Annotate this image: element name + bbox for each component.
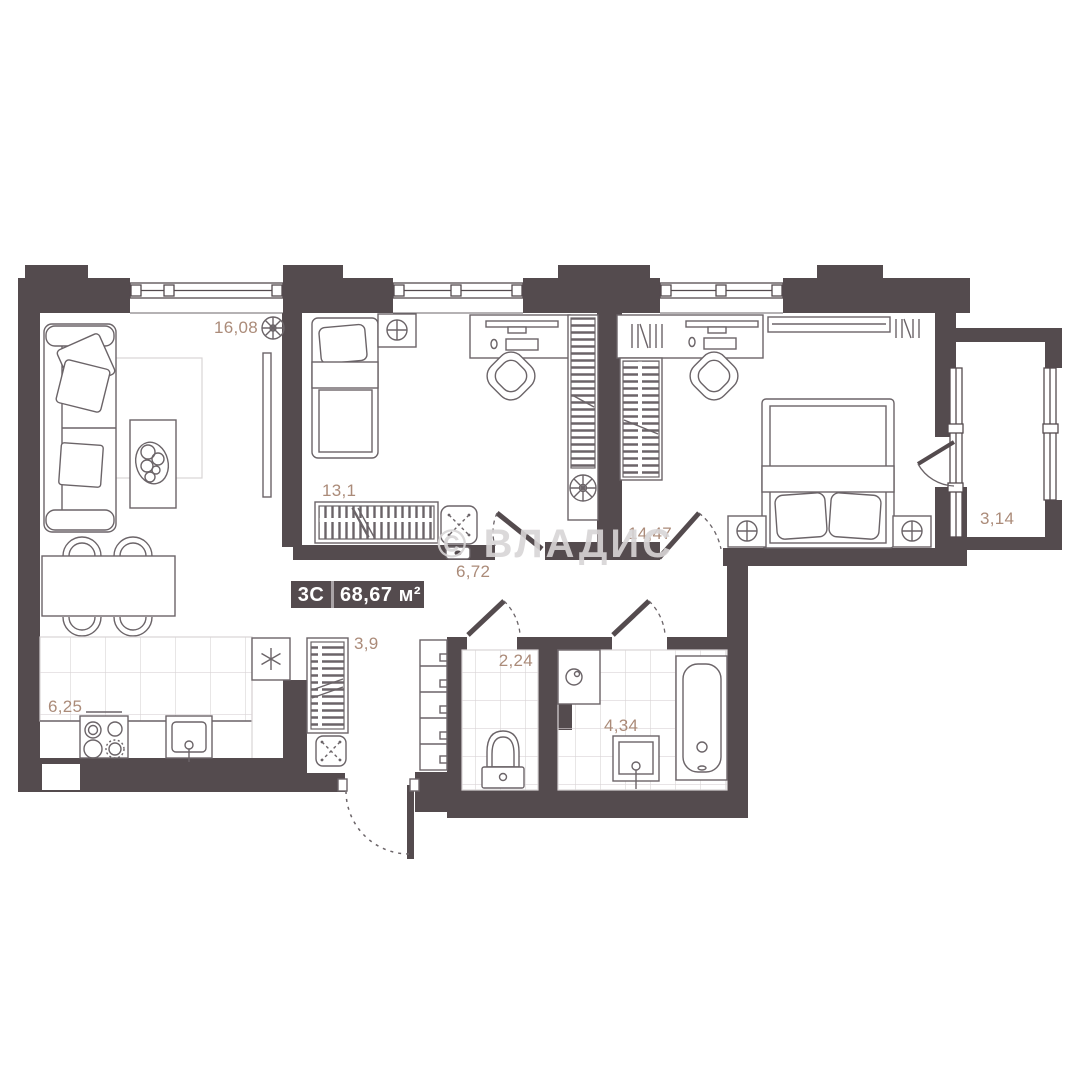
bookshelf (315, 502, 438, 543)
wall-notch (42, 764, 80, 790)
room-label-kitchen: 6,25 (48, 697, 82, 716)
shoe-bench (316, 736, 346, 766)
nightstand-right (893, 516, 931, 547)
room-label-bathroom: 4,34 (604, 716, 638, 735)
vestibule-cabinet (420, 640, 447, 770)
room-label-living: 16,08 (214, 318, 258, 337)
room-label-hallway: 3,9 (354, 634, 379, 653)
room-label-bedroom: 13,1 (322, 481, 356, 500)
hall-wardrobe (307, 638, 348, 733)
room-label-wc: 2,24 (499, 651, 533, 670)
nightstand (378, 314, 416, 347)
wardrobe (620, 358, 662, 480)
bathtub (676, 656, 727, 780)
window-living (130, 283, 283, 298)
nightstand-left (728, 516, 766, 547)
desk (470, 315, 570, 358)
bathroom (558, 650, 727, 790)
wc-door (468, 601, 520, 635)
fridge (252, 638, 290, 680)
stove (80, 712, 128, 758)
kitchen-sink (166, 716, 212, 762)
bath-sink (613, 736, 659, 789)
balcony-door (918, 442, 954, 486)
washing-machine (558, 650, 600, 704)
entrance-door (338, 779, 419, 859)
desk (617, 315, 763, 358)
bathroom-door (613, 601, 665, 635)
apartment-type: 3С (298, 584, 325, 606)
floor-plan: 16,08 13,1 6,72 14,47 3,14 6,25 3,9 2,24… (0, 0, 1080, 1080)
dining-table (42, 556, 175, 616)
room-label-balcony: 3,14 (980, 509, 1014, 528)
window-bedroom (393, 283, 523, 298)
watermark: © ВЛАДИС (437, 522, 674, 566)
sofa (44, 324, 116, 532)
window-master-bedroom (660, 283, 783, 298)
hallway (307, 638, 447, 770)
apartment-plate: 3С 68,67 м² (291, 581, 424, 608)
living-room (42, 317, 284, 636)
master-bedroom (617, 315, 931, 548)
single-bed (312, 318, 378, 458)
tv-unit (263, 353, 271, 497)
plant-icon (570, 475, 596, 501)
apartment-area: 68,67 м² (340, 584, 421, 606)
floor-plan-page: 16,08 13,1 6,72 14,47 3,14 6,25 3,9 2,24… (0, 0, 1080, 1080)
double-bed (762, 399, 894, 548)
wall-shelf (768, 317, 919, 338)
wc (462, 650, 538, 790)
plant-icon (262, 317, 284, 339)
dining-set (42, 537, 175, 636)
coffee-table (130, 420, 176, 508)
